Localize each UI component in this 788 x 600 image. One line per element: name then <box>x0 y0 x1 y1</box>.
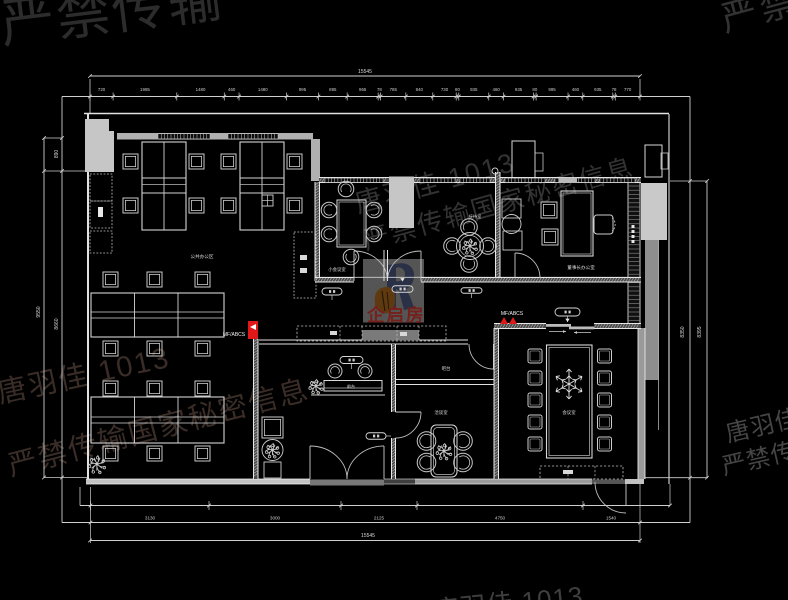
svg-text:1985: 1985 <box>140 87 150 92</box>
svg-text:接待室: 接待室 <box>469 213 482 220</box>
svg-text:会议室: 会议室 <box>562 409 576 416</box>
svg-text:935: 935 <box>515 87 523 92</box>
svg-text:董事长办公室: 董事长办公室 <box>567 264 595 271</box>
svg-text:企启房: 企启房 <box>366 305 426 325</box>
svg-text:1540: 1540 <box>606 516 617 521</box>
svg-text:8660: 8660 <box>54 318 60 329</box>
svg-text:460: 460 <box>492 87 500 92</box>
svg-text:公共办公区: 公共办公区 <box>191 253 214 260</box>
svg-text:1480: 1480 <box>258 87 268 92</box>
svg-text:3130: 3130 <box>145 516 156 521</box>
svg-text:3000: 3000 <box>270 516 281 521</box>
svg-text:785: 785 <box>390 87 398 92</box>
svg-text:460: 460 <box>572 87 580 92</box>
svg-text:洽谈室: 洽谈室 <box>434 409 448 416</box>
svg-text:吧台: 吧台 <box>442 365 451 372</box>
svg-text:78: 78 <box>377 87 382 92</box>
svg-text:15545: 15545 <box>361 533 375 539</box>
svg-text:4750: 4750 <box>495 516 506 521</box>
svg-text:770: 770 <box>624 87 632 92</box>
svg-text:15545: 15545 <box>358 69 372 75</box>
svg-text:965: 965 <box>359 87 367 92</box>
svg-text:460: 460 <box>228 87 236 92</box>
svg-text:9550: 9550 <box>36 306 42 317</box>
svg-text:80: 80 <box>455 87 460 92</box>
svg-text:8350: 8350 <box>680 326 686 337</box>
svg-text:小会议室: 小会议室 <box>328 266 346 273</box>
svg-text:1480: 1480 <box>196 87 206 92</box>
svg-text:720: 720 <box>98 87 106 92</box>
svg-text:730: 730 <box>441 87 449 92</box>
svg-text:MF/ABCS: MF/ABCS <box>223 332 246 338</box>
svg-text:995: 995 <box>299 87 307 92</box>
svg-text:935: 935 <box>470 87 478 92</box>
svg-text:前台: 前台 <box>347 383 355 389</box>
svg-text:8395: 8395 <box>697 326 703 337</box>
svg-text:995: 995 <box>548 87 556 92</box>
svg-text:840: 840 <box>416 87 424 92</box>
svg-text:MF/ABCS: MF/ABCS <box>501 311 524 317</box>
svg-text:78: 78 <box>612 87 617 92</box>
svg-text:890: 890 <box>54 150 60 159</box>
svg-text:80: 80 <box>532 87 537 92</box>
svg-text:895: 895 <box>329 87 337 92</box>
svg-text:935: 935 <box>594 87 602 92</box>
svg-text:2125: 2125 <box>374 516 385 521</box>
